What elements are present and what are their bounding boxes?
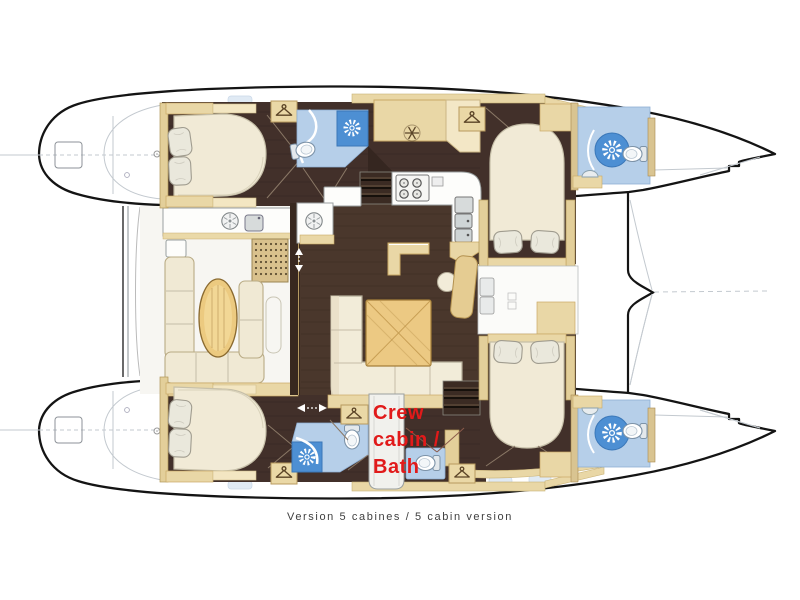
wardrobe-port-fwd bbox=[459, 107, 485, 131]
side-table bbox=[166, 240, 186, 257]
crew-cabin-annotation: Crew cabin / Bath bbox=[373, 400, 440, 481]
toilet-icon bbox=[623, 147, 647, 162]
wardrobe-port-aft bbox=[271, 101, 297, 122]
bed bbox=[174, 114, 266, 198]
grill-table bbox=[252, 239, 288, 282]
toilet-icon bbox=[345, 425, 360, 449]
wardrobe-crew bbox=[449, 464, 475, 483]
galley-sink bbox=[455, 229, 472, 242]
wardrobe-midship bbox=[341, 405, 368, 424]
cockpit bbox=[140, 206, 298, 396]
catamaran-floor-plan: Crew cabin / Bath Version 5 cabines / 5 … bbox=[0, 0, 800, 600]
pillow bbox=[530, 340, 559, 364]
foredeck-edge bbox=[628, 192, 653, 393]
steps-port-hull bbox=[360, 172, 392, 204]
round-sink-icon bbox=[306, 213, 322, 229]
salon-table bbox=[366, 300, 431, 366]
shower bbox=[337, 111, 368, 146]
stove-icon bbox=[396, 175, 429, 201]
pillow bbox=[530, 230, 559, 254]
galley-sink bbox=[455, 214, 472, 228]
pillow bbox=[168, 156, 191, 185]
pillow bbox=[167, 127, 193, 158]
pillow bbox=[168, 399, 193, 429]
steps-starboard-hull bbox=[443, 381, 480, 415]
round-sink-icon bbox=[222, 213, 238, 229]
galley-sink bbox=[455, 197, 473, 213]
floor-plan-drawing bbox=[0, 0, 800, 600]
bed bbox=[490, 124, 564, 240]
annotation-line-1: Crew bbox=[373, 400, 440, 427]
pillow bbox=[168, 428, 191, 457]
toilet-icon bbox=[623, 424, 647, 439]
pillow bbox=[493, 340, 522, 364]
annotation-line-2: cabin / bbox=[373, 427, 440, 454]
pillow bbox=[493, 230, 522, 254]
bed bbox=[174, 387, 266, 471]
cockpit-table bbox=[199, 279, 237, 357]
cockpit-sink bbox=[245, 215, 263, 231]
version-caption: Version 5 cabines / 5 cabin version bbox=[0, 511, 800, 523]
annotation-line-3: Bath bbox=[373, 454, 440, 481]
